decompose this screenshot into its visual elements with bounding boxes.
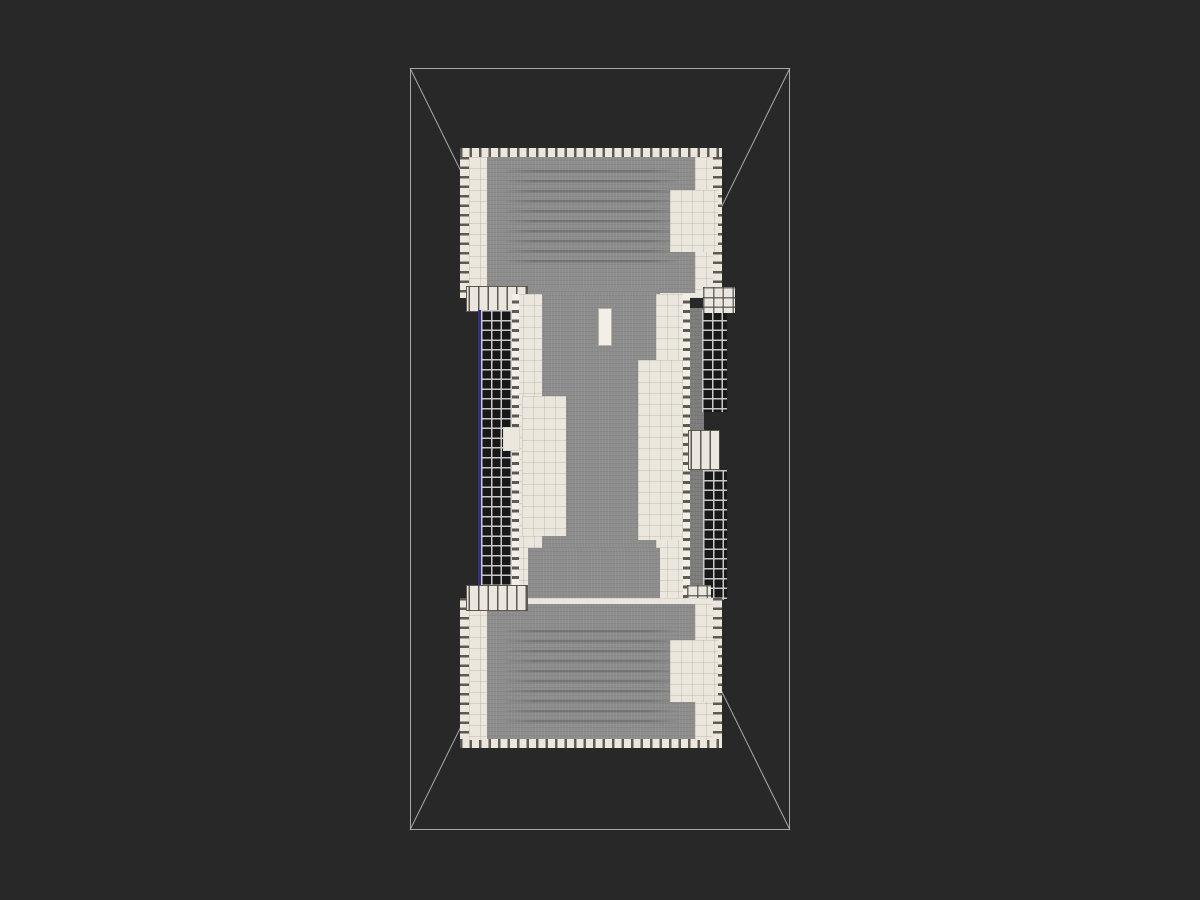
hall-bottom-cren-left [460,598,469,739]
hall-bottom-cren-bottom [460,739,722,748]
hall-top-cren-left [460,157,469,298]
transept-tip-left [503,427,520,451]
stud-block-bottom-left [466,585,528,611]
hall-bottom-wall-left [469,604,487,740]
blue-marker-line [478,310,481,592]
structure-render [0,0,1200,900]
viewport-3d[interactable] [0,0,1200,900]
skylight-top [598,308,612,346]
hall-top-wall-left [469,157,487,293]
courtyard-grid-right-lower [703,470,727,600]
hall-bottom-seat-rows [503,630,679,728]
gallery-cap-right-upper [703,287,735,313]
courtyard-grid-left [481,310,512,592]
transept-tip-right [688,430,720,470]
hall-top-cren-top [460,148,722,157]
hall-top-seat-rows [503,170,679,268]
courtyard-grid-right-upper [702,310,727,412]
hall-bottom-tower [670,640,718,702]
hall-top-tower [670,190,718,252]
transept-plaza-left [522,396,566,536]
transept-plaza-right [638,360,688,540]
